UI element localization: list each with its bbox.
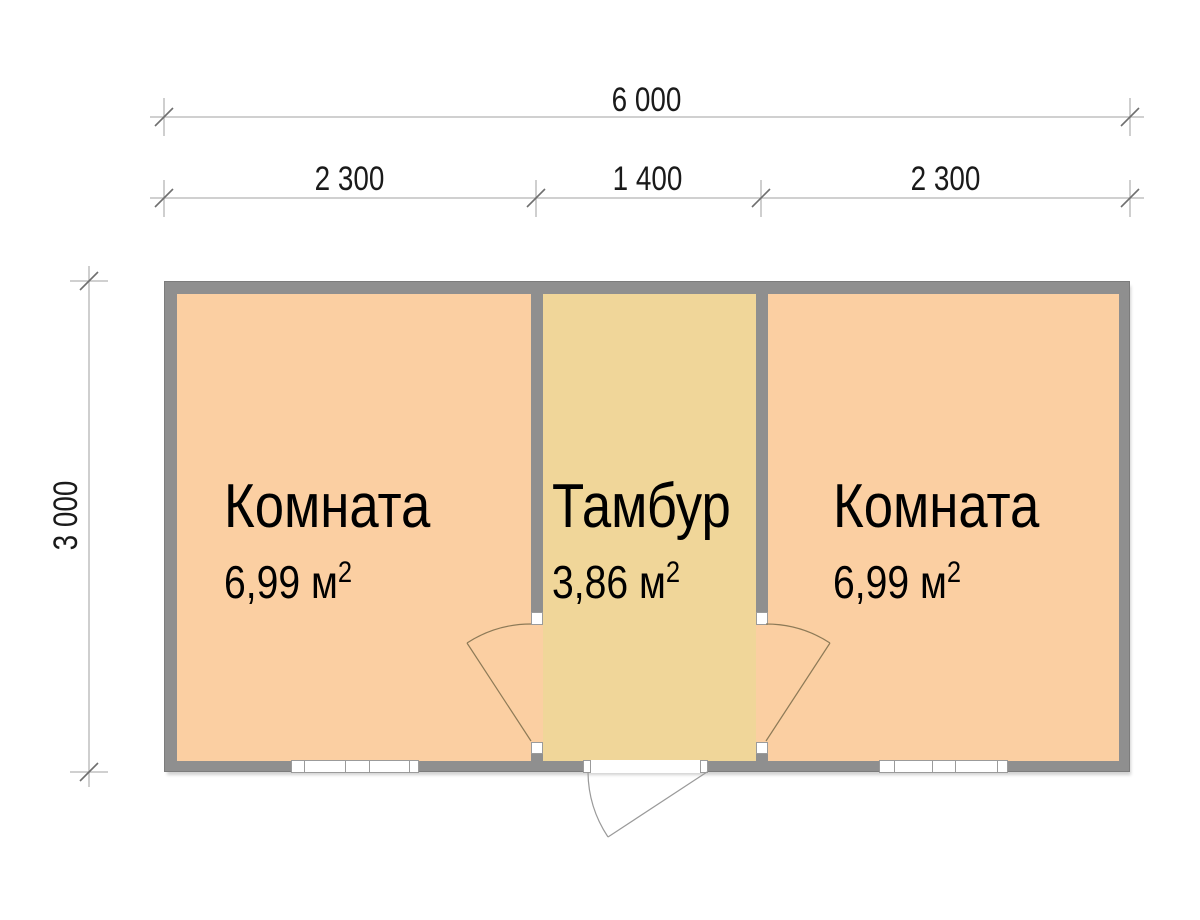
room-name: Комната <box>224 474 430 540</box>
window-mullion <box>932 761 933 772</box>
room-label-left: Комната 6,99 м2 <box>224 474 430 607</box>
door-jamb-icon <box>583 760 591 773</box>
room-area: 6,99 м2 <box>833 548 1039 607</box>
superscript: 2 <box>666 556 680 589</box>
dimension-label-total-width: 6 000 <box>557 82 737 118</box>
door-jamb-icon <box>756 612 768 625</box>
door-jamb-icon <box>531 742 543 754</box>
door-opening-right-wall <box>756 625 768 742</box>
dimension-label-segment-middle: 1 400 <box>558 161 738 197</box>
entrance-door-opening <box>583 760 708 773</box>
floor-plan-canvas: 6 000 2 300 1 400 2 300 3 000 Комната 6,… <box>0 0 1200 920</box>
room-label-right: Комната 6,99 м2 <box>833 474 1039 607</box>
room-area: 3,86 м2 <box>552 548 731 607</box>
superscript: 2 <box>947 556 961 589</box>
superscript: 2 <box>338 556 352 589</box>
dimension-label-segment-right: 2 300 <box>856 161 1036 197</box>
window-mullion <box>369 761 370 772</box>
door-opening-left-wall <box>531 625 543 742</box>
window-mullion <box>997 761 998 772</box>
room-name: Комната <box>833 474 1039 540</box>
window-mullion <box>955 761 956 772</box>
window-icon-left-room <box>291 760 419 773</box>
window-mullion <box>345 761 346 772</box>
door-jamb-icon <box>531 612 543 625</box>
room-label-vestibule: Тамбур 3,86 м2 <box>552 474 731 607</box>
window-mullion <box>894 761 895 772</box>
door-jamb-icon <box>756 742 768 754</box>
door-swing-entrance <box>588 772 707 837</box>
window-mullion <box>304 761 305 772</box>
window-icon-right-room <box>879 760 1008 773</box>
dimension-label-height: 3 000 <box>48 425 84 605</box>
window-mullion <box>409 761 410 772</box>
room-name: Тамбур <box>552 474 731 540</box>
door-jamb-icon <box>700 760 708 773</box>
room-area: 6,99 м2 <box>224 548 430 607</box>
dimension-label-segment-left: 2 300 <box>260 161 440 197</box>
